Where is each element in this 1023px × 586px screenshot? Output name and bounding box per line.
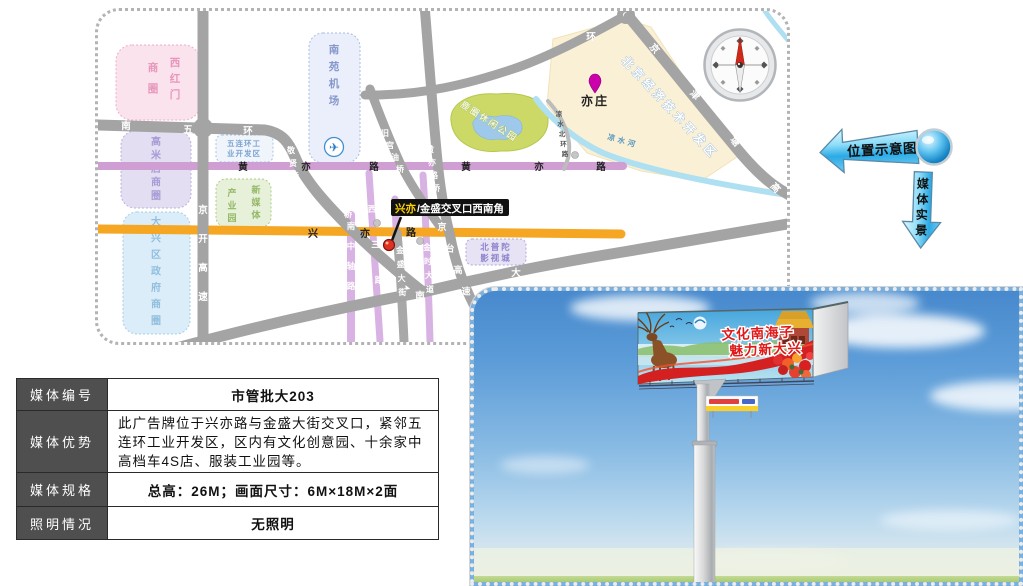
table-row-lighting: 照明情况 无照明 xyxy=(17,507,438,539)
xingyi-char-1: 兴 xyxy=(308,227,318,240)
marker-dot-highlight xyxy=(386,242,389,245)
huangyi-west-2: 亦 xyxy=(301,161,311,173)
huangyi-east-1: 黄 xyxy=(461,161,471,173)
wuhuan-char-huan: 环 xyxy=(243,126,253,137)
junction-dot-3 xyxy=(572,152,579,159)
jingkai-junction xyxy=(193,118,213,138)
marker-callout-highlight: 兴亦 xyxy=(395,202,416,215)
xingyi-char-2: 亦 xyxy=(360,227,370,240)
yizhuang-label: 亦庄 xyxy=(581,93,609,108)
region-newmedia-box xyxy=(216,179,271,227)
region-beiputuo-line1: 北普陀 xyxy=(480,242,512,252)
road-southwest-branch xyxy=(173,292,423,345)
horizon-haze xyxy=(470,548,1023,578)
media-photo-arrow: 媒体实景 xyxy=(902,171,943,248)
huangyi-east-2: 亦 xyxy=(534,161,544,173)
region-industry-line2: 业开发区 xyxy=(227,148,261,158)
wuhuan-char-nan: 南 xyxy=(121,120,131,132)
row-label-media-advantage: 媒体优势 xyxy=(17,411,108,472)
marker-dot xyxy=(384,240,395,251)
table-row-media-id: 媒体编号 市管批大203 xyxy=(17,379,438,411)
row-value-lighting: 无照明 xyxy=(108,507,438,539)
grass-strip xyxy=(470,576,1023,586)
huangyi-west-1: 黄 xyxy=(238,161,248,173)
xingyi-char-3: 路 xyxy=(406,226,417,239)
media-info-table: 媒体编号 市管批大203 媒体优势 此广告牌位于兴亦路与金盛大街交叉口，紧邻五连… xyxy=(16,378,439,540)
ad-text-line1: 文化南海子 xyxy=(721,323,794,342)
region-industry-line1: 五连环工 xyxy=(227,138,261,148)
region-newmedia-right: 新媒体 xyxy=(250,184,261,220)
row-label-lighting: 照明情况 xyxy=(17,507,108,539)
row-label-media-id: 媒体编号 xyxy=(17,379,108,410)
side-labels: 位置示意图 媒体实景 xyxy=(813,122,1023,262)
nan-char: 南 xyxy=(415,290,425,302)
airplane-icon: ✈ xyxy=(329,141,339,155)
media-sheet-page: { "side_labels": { "location_arrow": "位置… xyxy=(0,0,1023,586)
sphere-icon xyxy=(917,130,952,165)
huan-char: 环 xyxy=(586,32,596,43)
compass-icon xyxy=(705,30,776,101)
junction-dot-1 xyxy=(374,220,381,227)
marker-callout-rest: /金盛交叉口西南角 xyxy=(417,202,504,215)
billboard-photo: 文化南海子 魅力新大兴 xyxy=(470,287,1023,586)
row-value-media-spec: 总高：26M；画面尺寸：6M×18M×2面 xyxy=(108,473,438,506)
region-beiputuo-line2: 影视城 xyxy=(480,253,512,263)
board-side-face xyxy=(813,302,848,377)
da-char: 大 xyxy=(511,267,521,279)
region-xihongmen-right: 西红门 xyxy=(170,57,181,101)
media-photo-panel: 文化南海子 魅力新大兴 xyxy=(470,287,1023,586)
wuhuan-char-wu: 五 xyxy=(183,125,193,136)
table-row-media-advantage: 媒体优势 此广告牌位于兴亦路与金盛大街交叉口，紧邻五连环工业开发区，区内有文化创… xyxy=(17,411,438,473)
huangyi-east-3: 路 xyxy=(596,161,606,173)
region-newmedia-left: 产业园 xyxy=(227,187,236,223)
pole-lower xyxy=(694,445,715,586)
huangyi-west-3: 路 xyxy=(369,161,379,173)
media-photo-sphere xyxy=(917,130,952,165)
row-label-media-spec: 媒体规格 xyxy=(17,473,108,506)
row-value-media-advantage: 此广告牌位于兴亦路与金盛大街交叉口，紧邻五连环工业开发区，区内有文化创意园、十余… xyxy=(108,411,438,472)
row-value-media-id: 市管批大203 xyxy=(108,379,438,410)
ad-text-line2: 魅力新大兴 xyxy=(729,339,802,358)
table-row-media-spec: 媒体规格 总高：26M；画面尺寸：6M×18M×2面 xyxy=(17,473,438,507)
location-arrow: 位置示意图 xyxy=(819,126,919,174)
pole-upper xyxy=(697,384,709,444)
